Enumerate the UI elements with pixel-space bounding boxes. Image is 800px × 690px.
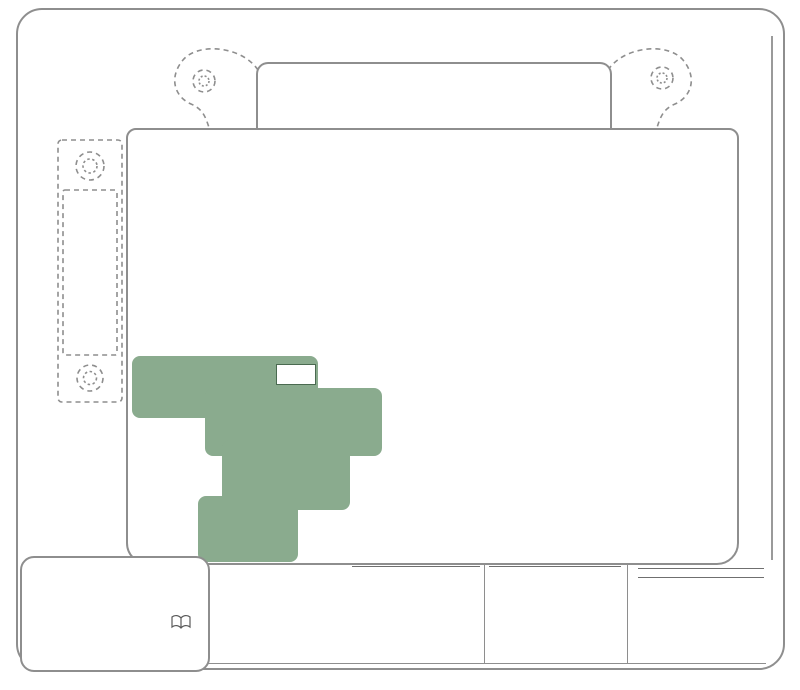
legend-bottom-rule [208,663,766,664]
highlight-zone [198,496,298,562]
owners-manual-book-icon [170,614,192,630]
maxi-fuse-block-outline [256,62,612,130]
legend-divider-2 [627,563,628,663]
legend-except-h2 [638,566,764,580]
prime-label [276,364,316,385]
fuse-panel-diagram [0,0,800,690]
case-inner-edge [771,36,773,560]
legend-gas-header [352,564,480,567]
legend-except-h2-header [638,566,764,569]
legend-diesel [489,564,621,569]
legend-h2-header [638,575,764,578]
legend-diesel-header [489,564,621,567]
legend-gas [352,564,480,569]
legend-divider-1 [484,563,485,663]
